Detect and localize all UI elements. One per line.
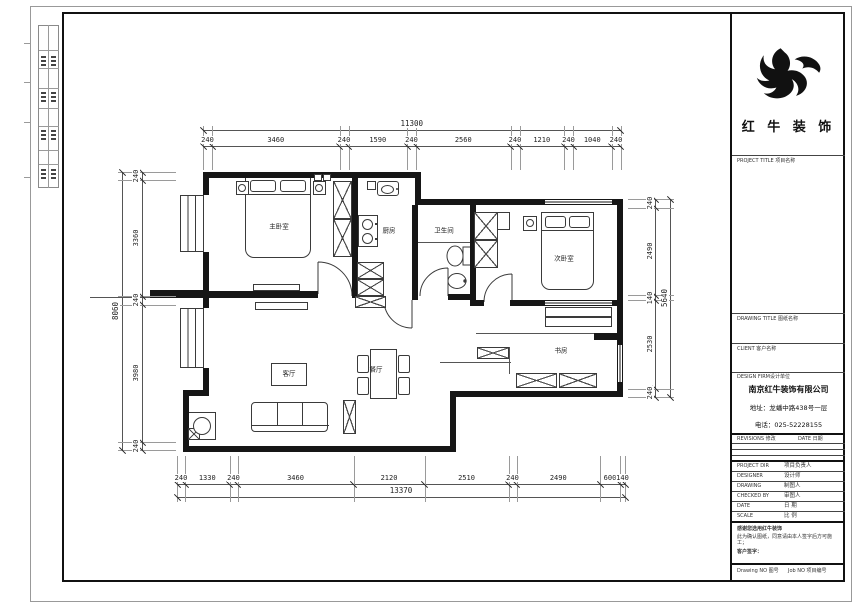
dining-chair: [398, 355, 410, 373]
dimension-label: 140: [615, 474, 630, 482]
small-fixture: [367, 181, 376, 190]
extension-line: [118, 305, 176, 306]
master-door-arc: [318, 262, 352, 296]
bay-window: [180, 308, 204, 368]
dimension-label: 2560: [454, 136, 473, 144]
partition-line: [418, 242, 470, 243]
strip-mark: [41, 92, 46, 102]
circle-symbol: [526, 219, 534, 227]
job-no-label: Job NO 项目编号: [788, 568, 827, 574]
dining-chair: [357, 355, 369, 373]
dining-table: [370, 349, 397, 399]
wall-segment: [183, 390, 189, 452]
extension-line: [600, 456, 601, 502]
dimension-line: [203, 130, 621, 131]
dimension-label: 2530: [646, 335, 654, 354]
dimension-label: 2490: [646, 242, 654, 261]
title-block: 红 牛 装 饰 PROJECT TITLE 项目名称 DRAWING TITLE…: [732, 12, 845, 582]
strip-mark: [51, 56, 56, 66]
extension-line: [118, 180, 176, 181]
firm-name: 南京红牛装饰有限公司: [732, 384, 845, 395]
window: [545, 199, 612, 205]
strip-line: [39, 126, 59, 127]
entry-door-arc: [384, 300, 412, 328]
note-line3: 客户签字：: [737, 549, 762, 555]
partition-line: [476, 333, 594, 334]
fold-mark: [24, 177, 31, 178]
dimension-line: [177, 484, 625, 485]
strip-mark: [41, 130, 46, 140]
x-cabinet: [474, 240, 498, 268]
kitchen-sink: [377, 181, 399, 196]
extension-line: [118, 442, 176, 443]
sofa: [251, 402, 328, 432]
pillow: [250, 180, 276, 192]
date-col-label: DATE 日期: [798, 436, 823, 442]
strip-line: [39, 88, 59, 89]
dimension-label: 140: [646, 290, 654, 305]
firm-phone: 电话：025-52228155: [732, 419, 845, 429]
wall-segment: [203, 172, 421, 178]
wall-segment: [476, 300, 484, 306]
partition-line: [440, 362, 511, 363]
dimension-total: 8060: [112, 301, 120, 321]
extension-line: [118, 296, 176, 297]
x-cabinet: [357, 262, 384, 279]
dimension-label: 240: [508, 136, 523, 144]
basin-faucet: [464, 280, 466, 282]
note-line1: 感谢您选用红牛装饰: [737, 526, 782, 532]
strip-mark: [51, 92, 56, 102]
strip-line: [39, 108, 59, 109]
strip-line: [39, 164, 59, 165]
wall-segment: [617, 205, 623, 306]
room-label: 次卧室: [554, 256, 574, 263]
dimension-total: 13370: [389, 487, 414, 495]
wall-segment: [412, 294, 418, 300]
design-firm-label: DESIGN FIRM设计单位: [737, 374, 790, 380]
extension-line: [425, 456, 426, 502]
x-cabinet: [357, 279, 384, 296]
circle-symbol: [193, 417, 211, 435]
wall-segment: [203, 291, 318, 298]
master-bed: [245, 176, 311, 258]
wall-segment: [450, 391, 623, 397]
dimension-label: 3360: [132, 229, 140, 248]
room-label: 主卧室: [269, 224, 289, 231]
project-title-label: PROJECT TITLE 项目名称: [737, 158, 795, 164]
small-fixture: [497, 212, 510, 230]
wall-segment: [415, 199, 545, 205]
strip-line: [39, 68, 59, 69]
pillow: [569, 216, 590, 228]
small-fixture: [323, 174, 331, 181]
fold-mark: [24, 122, 31, 123]
dimension-line: [177, 497, 625, 498]
drawing-no-label: Drawing NO 图号: [737, 568, 779, 574]
extension-line: [118, 450, 176, 451]
dimension-label: 240: [646, 385, 654, 400]
wall-segment: [510, 300, 545, 306]
wall-segment: [450, 397, 456, 452]
drawing-title-label: DRAWING TITLE 图纸名称: [737, 316, 798, 322]
circle-symbol: [315, 184, 323, 192]
dimension-line: [122, 172, 123, 450]
room-label: 书房: [555, 348, 568, 355]
room-label: 厨房: [383, 228, 396, 235]
dimension-total: 11300: [399, 120, 424, 128]
stove-icon: [358, 215, 378, 247]
room-label: 客厅: [283, 371, 296, 378]
dimension-label: 2510: [457, 474, 476, 482]
fold-mark: [24, 43, 31, 44]
wall-segment: [203, 368, 209, 395]
dimension-label: 240: [200, 136, 215, 144]
x-cabinet: [343, 400, 356, 434]
bed-headboard: [246, 177, 310, 195]
dimension-label: 1040: [583, 136, 602, 144]
logo-text: 红 牛 装 饰: [732, 116, 845, 135]
x-cabinet: [355, 296, 386, 308]
bay-window: [545, 307, 612, 327]
dimension-label: 2120: [380, 474, 399, 482]
dimension-label: 240: [132, 293, 140, 308]
dimension-label: 240: [609, 136, 624, 144]
strip-mark: [51, 130, 56, 140]
dimension-label: 240: [132, 439, 140, 454]
toilet-icon: [447, 246, 463, 266]
bathroom-door-arc: [420, 268, 448, 296]
x-cabinet: [559, 373, 597, 388]
wall-segment: [183, 446, 456, 452]
dimension-label: 1210: [532, 136, 551, 144]
dimension-label: 240: [646, 196, 654, 211]
extension-line: [354, 456, 355, 502]
wall-segment: [594, 333, 623, 340]
dimension-label: 240: [132, 169, 140, 184]
dimension-total: 5640: [661, 288, 669, 308]
window: [617, 345, 623, 382]
dimension-line: [655, 199, 656, 397]
x-cabinet: [516, 373, 557, 388]
dining-chair: [398, 377, 410, 395]
wall-segment: [412, 205, 418, 300]
tv-console: [255, 302, 308, 310]
dimension-label: 240: [561, 136, 576, 144]
dimension-line: [670, 199, 671, 397]
dimension-line: [203, 146, 621, 147]
dimension-label: 3980: [132, 364, 140, 383]
bay-window: [180, 195, 204, 252]
bedroom2-door-arc: [484, 274, 512, 302]
circle-symbol: [238, 184, 246, 192]
x-cabinet: [477, 347, 509, 359]
wall-segment: [203, 172, 209, 195]
company-logo: [754, 44, 824, 110]
pillow: [545, 216, 566, 228]
room-label: 餐厅: [370, 367, 383, 374]
wall-segment: [203, 252, 209, 295]
x-cabinet: [333, 219, 352, 257]
dimension-label: 3460: [286, 474, 305, 482]
revisions-label: REVISIONS 修改: [737, 436, 776, 442]
dining-chair: [357, 377, 369, 395]
washbasin-icon: [448, 274, 466, 289]
bed-headboard: [542, 213, 593, 231]
dimension-label: 240: [226, 474, 241, 482]
dimension-label: 1330: [198, 474, 217, 482]
firm-address: 地址：龙蟠中路438号一层: [732, 402, 845, 412]
dimension-label: 2490: [549, 474, 568, 482]
extension-line: [118, 172, 176, 173]
dimension-line: [142, 172, 143, 450]
fold-mark: [24, 82, 31, 83]
floor-plan: 2403460240159024025602401210240104024011…: [0, 0, 860, 608]
dimension-label: 240: [337, 136, 352, 144]
strip-mark: [41, 56, 46, 66]
strip-mark: [51, 169, 56, 179]
strip-mark: [41, 169, 46, 179]
strip-line: [39, 150, 59, 151]
dimension-label: 240: [404, 136, 419, 144]
partition-line: [509, 347, 510, 374]
dimension-label: 3460: [266, 136, 285, 144]
client-label: CLIENT 客户名称: [737, 346, 776, 352]
x-cabinet: [474, 212, 498, 240]
dimension-label: 240: [174, 474, 189, 482]
dimension-label: 240: [505, 474, 520, 482]
strip-line: [39, 50, 59, 51]
dresser: [253, 284, 300, 291]
small-fixture: [314, 174, 322, 181]
room-label: 卫生间: [434, 228, 454, 235]
partition-line: [90, 297, 150, 298]
dimension-label: 1590: [368, 136, 387, 144]
x-cabinet: [333, 181, 352, 219]
second-bed: [541, 212, 594, 290]
drawing-sheet: 2403460240159024025602401210240104024011…: [0, 0, 860, 608]
note-line2: 此为确认图纸，同意请由本人签字后方可施工；: [737, 534, 841, 546]
window: [545, 300, 612, 306]
pillow: [280, 180, 306, 192]
